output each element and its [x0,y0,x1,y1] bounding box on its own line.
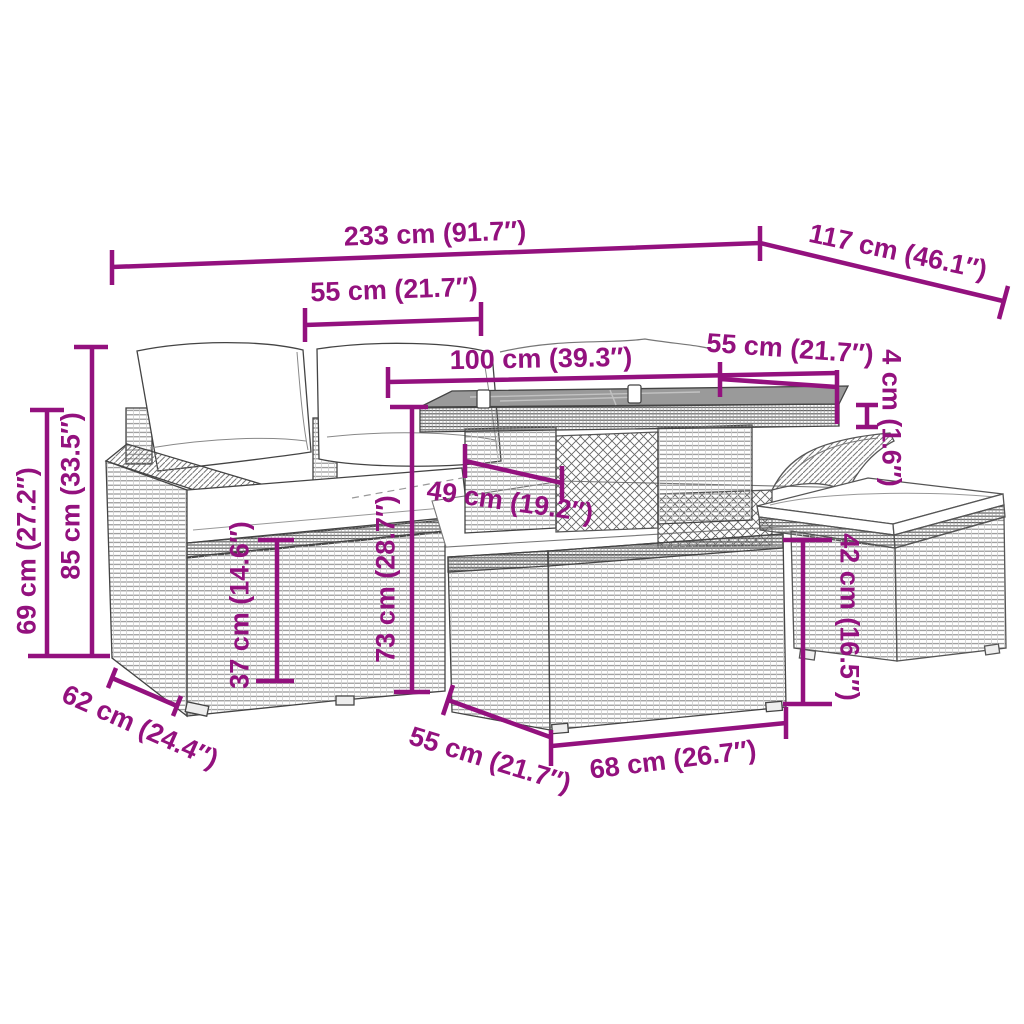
dim-line-ottoman-height [783,540,832,704]
dim-line-seat-height [256,540,294,681]
dim-label-tabletop-thickness: 4 cm (1.6″) [876,349,907,487]
furniture-dimension-diagram: 233 cm (91.7″) 117 cm (46.1″) 55 cm (21.… [0,0,1024,1024]
dim-label-ottoman-height: 42 cm (16.5″) [834,533,865,701]
dim-label-table-length: 100 cm (39.3″) [449,342,632,376]
dim-label-overall-width: 233 cm (91.7″) [343,215,527,252]
dim-label-backrest-height: 85 cm (33.5″) [56,412,87,580]
dim-label-left-seat-width: 55 cm (21.7″) [310,272,479,309]
dim-label-table-height: 73 cm (28.7″) [371,495,402,663]
dim-label-seat-height: 37 cm (14.6″) [225,521,256,689]
dim-line-left-seat-width [305,302,481,342]
dim-label-armrest-height: 69 cm (27.2″) [12,467,43,635]
